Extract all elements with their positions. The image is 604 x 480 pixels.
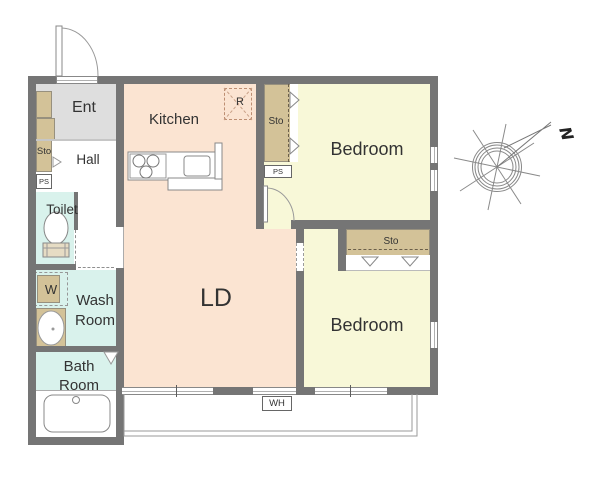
entrance-door-leaf — [56, 26, 62, 76]
wash-room-door-line — [78, 267, 114, 268]
water-heater-box: WH — [262, 396, 292, 411]
wall-bedroom-top-bottom — [291, 220, 438, 229]
wall-ld-bedroom-lower — [296, 271, 304, 387]
label-storage-bedroom-bottom: Sto — [376, 236, 406, 248]
entrance-door-opening — [56, 76, 98, 84]
label-toilet: Toilet — [33, 202, 91, 218]
entrance-door-arc — [62, 28, 98, 76]
window-tick-bedroom-bottom — [350, 385, 351, 397]
label-ent: Ent — [58, 98, 110, 117]
label-refrigerator: R — [228, 96, 252, 109]
wall-kitchen-closet — [256, 84, 264, 229]
label-hall: Hall — [68, 152, 108, 168]
window-bedroom-bottom-right — [430, 322, 438, 348]
floor-plan: N WH Ent Kitchen Hall Toilet Wash Room B… — [0, 0, 604, 480]
closet-top-door-strip — [290, 84, 298, 162]
label-pipe-space-hall: PS — [36, 176, 52, 187]
label-bedroom-top: Bedroom — [316, 139, 418, 160]
wall-ld-bedroom-upper — [296, 229, 304, 243]
label-wash-room: Wash Room — [63, 291, 127, 331]
floor-bathtub-area — [36, 390, 116, 437]
label-kitchen: Kitchen — [132, 111, 216, 129]
ld-bedroom-sliding-door — [296, 243, 304, 271]
label-storage-hall: Sto — [31, 146, 57, 158]
wall-left — [28, 76, 36, 445]
wall-bath-bottom — [28, 437, 124, 445]
wall-wash-bath — [28, 346, 116, 352]
wall-toilet-bottom — [28, 264, 76, 270]
window-mullion-bedroom-top — [430, 163, 438, 170]
compass — [454, 122, 551, 210]
shoe-cabinet-lower — [36, 118, 55, 140]
wall-hall-kitchen — [116, 84, 124, 227]
closet-bottom-door-strip — [346, 255, 430, 271]
window-ld-right — [253, 387, 296, 395]
label-pipe-space-bedroom: PS — [264, 166, 292, 177]
label-ld: LD — [176, 284, 256, 312]
entrance-step-line — [36, 139, 116, 141]
toilet-sliding-door — [75, 230, 76, 264]
shoe-cabinet-upper — [36, 91, 52, 118]
wall-closet-bottom-left — [338, 229, 346, 271]
label-washer: W — [39, 282, 63, 297]
closet-bottom-dashed-line — [348, 249, 428, 250]
window-bedroom-bottom — [315, 387, 387, 395]
label-bath-room: Bath Room — [47, 357, 111, 395]
label-bedroom-bottom: Bedroom — [316, 315, 418, 336]
vanity-counter — [36, 308, 66, 348]
water-heater-label: WH — [263, 397, 291, 410]
label-storage-bedroom-top: Sto — [261, 116, 291, 128]
hall-ld-opening-line — [123, 227, 124, 268]
window-ld-main — [122, 387, 213, 395]
window-tick-ld — [176, 385, 177, 397]
north-label: N — [555, 124, 577, 143]
